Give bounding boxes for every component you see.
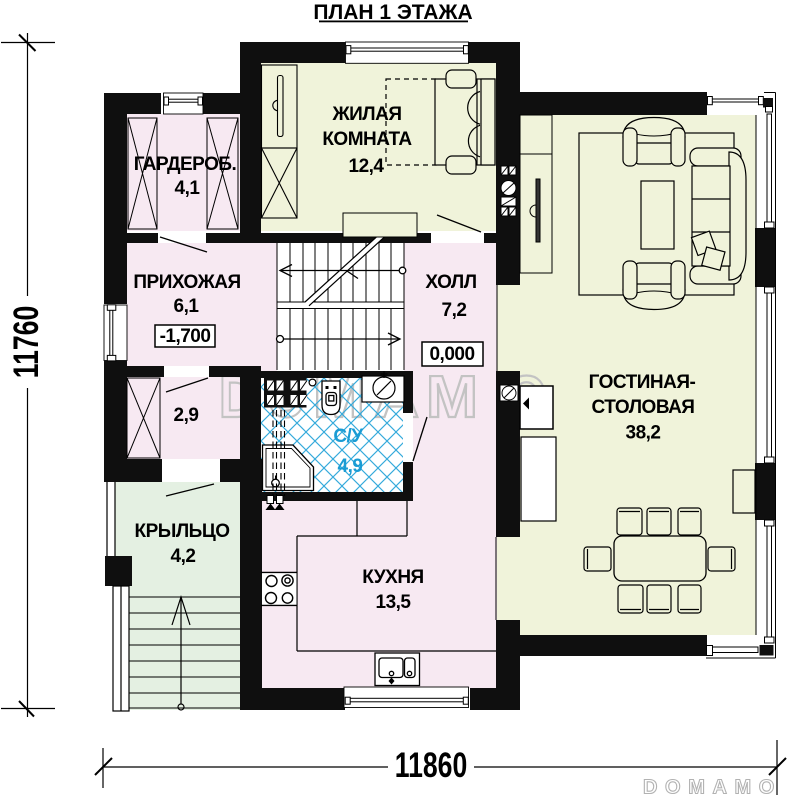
svg-text:11860: 11860 (395, 745, 467, 784)
svg-text:38,2: 38,2 (626, 423, 661, 444)
svg-text:4,2: 4,2 (171, 546, 196, 567)
svg-text:ЖИЛАЯ: ЖИЛАЯ (331, 104, 401, 125)
svg-text:12,4: 12,4 (349, 156, 385, 177)
svg-text:6,1: 6,1 (174, 296, 200, 317)
svg-text:СТОЛОВАЯ: СТОЛОВАЯ (592, 397, 695, 418)
svg-text:DOMAMO: DOMAMO (643, 777, 782, 799)
svg-text:ГАРДЕРОБ.: ГАРДЕРОБ. (134, 154, 237, 175)
svg-text:13,5: 13,5 (376, 592, 412, 613)
svg-text:2,9: 2,9 (174, 405, 199, 426)
svg-text:КОМНАТА: КОМНАТА (322, 129, 412, 150)
svg-text:0,000: 0,000 (429, 344, 474, 365)
svg-text:7,2: 7,2 (442, 300, 467, 321)
svg-text:ГОСТИНАЯ-: ГОСТИНАЯ- (589, 372, 696, 393)
svg-text:КУХНЯ: КУХНЯ (362, 567, 423, 588)
svg-text:С/У: С/У (333, 426, 363, 447)
svg-text:КРЫЛЬЦО: КРЫЛЬЦО (134, 521, 229, 542)
svg-text:-1,700: -1,700 (160, 326, 211, 347)
svg-text:4,9: 4,9 (338, 456, 363, 477)
svg-text:ХОЛЛ: ХОЛЛ (425, 272, 476, 293)
svg-text:M: M (426, 364, 478, 430)
svg-text:4,1: 4,1 (175, 178, 201, 199)
svg-text:11760: 11760 (6, 306, 45, 378)
svg-text:ПРИХОЖАЯ: ПРИХОЖАЯ (133, 272, 240, 293)
